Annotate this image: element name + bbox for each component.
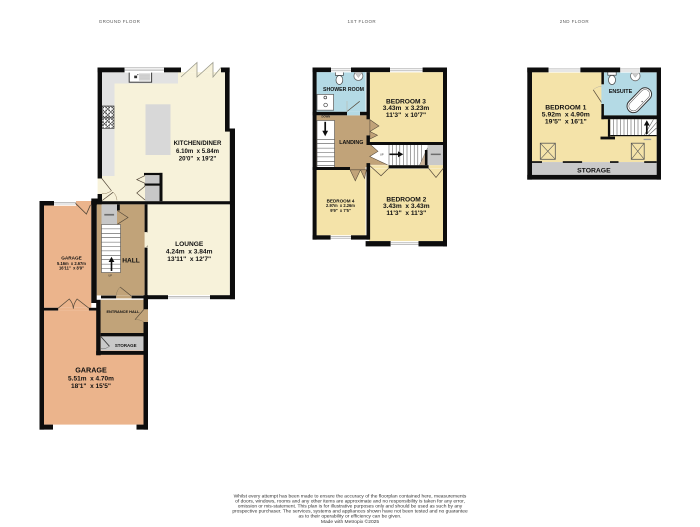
svg-text:of doors, windows, rooms and a: of doors, windows, rooms and any other i… bbox=[235, 498, 465, 504]
svg-text:SHOWER ROOM: SHOWER ROOM bbox=[323, 87, 364, 93]
svg-text:LANDING: LANDING bbox=[339, 140, 363, 146]
svg-text:LOUNGE: LOUNGE bbox=[175, 241, 204, 248]
svg-text:STORAGE: STORAGE bbox=[577, 167, 611, 174]
svg-text:2ND FLOOR: 2ND FLOOR bbox=[560, 19, 590, 24]
svg-text:13'11" x 12'7": 13'11" x 12'7" bbox=[167, 256, 211, 263]
svg-text:UP: UP bbox=[380, 153, 384, 157]
svg-text:18'1" x 15'5": 18'1" x 15'5" bbox=[71, 383, 111, 390]
svg-text:6.10m x 5.84m: 6.10m x 5.84m bbox=[176, 148, 220, 155]
svg-text:GARAGE: GARAGE bbox=[75, 366, 107, 375]
svg-text:11'3" x 11'3": 11'3" x 11'3" bbox=[386, 210, 426, 217]
svg-text:STORAGE: STORAGE bbox=[115, 343, 137, 348]
svg-text:1ST FLOOR: 1ST FLOOR bbox=[348, 19, 377, 24]
svg-text:UP: UP bbox=[108, 274, 112, 278]
svg-text:ENTRANCE HALL: ENTRANCE HALL bbox=[106, 309, 140, 314]
svg-text:ENSUITE: ENSUITE bbox=[609, 89, 633, 95]
svg-text:20'0" x 19'2": 20'0" x 19'2" bbox=[179, 156, 217, 163]
svg-text:as to their operability or eff: as to their operability or efficiency ca… bbox=[299, 514, 402, 520]
svg-text:5.51m x 4.70m: 5.51m x 4.70m bbox=[68, 376, 114, 383]
svg-text:Whilst every attempt has been: Whilst every attempt has been made to en… bbox=[234, 493, 467, 499]
svg-text:GROUND FLOOR: GROUND FLOOR bbox=[99, 19, 141, 24]
svg-text:KITCHEN/DINER: KITCHEN/DINER bbox=[174, 140, 222, 147]
svg-text:prospective purchaser. The ser: prospective purchaser. The services, sys… bbox=[232, 509, 468, 515]
svg-text:16'11" x 8'9": 16'11" x 8'9" bbox=[59, 266, 84, 271]
svg-text:19'5" x 16'1": 19'5" x 16'1" bbox=[545, 118, 587, 125]
svg-text:HALL: HALL bbox=[122, 258, 140, 265]
svg-text:omission or mis-statement. Thi: omission or mis-statement. This plan is … bbox=[238, 504, 463, 510]
svg-text:4.24m x 3.84m: 4.24m x 3.84m bbox=[166, 249, 213, 256]
svg-text:9'9" x 7'5": 9'9" x 7'5" bbox=[330, 208, 351, 213]
svg-text:Made with Metropix ©2025: Made with Metropix ©2025 bbox=[321, 518, 380, 525]
svg-text:11'3" x 10'7": 11'3" x 10'7" bbox=[386, 112, 426, 119]
